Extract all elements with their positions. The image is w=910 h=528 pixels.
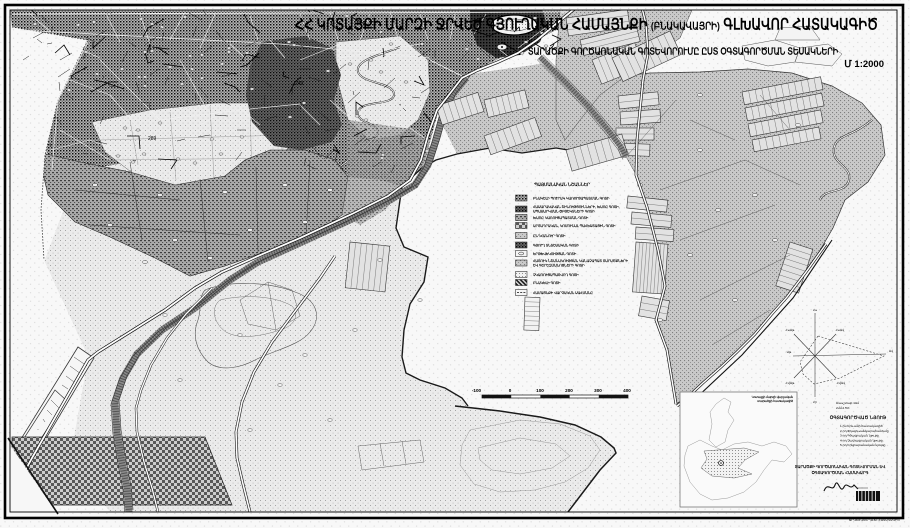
svg-text:0: 0 [509, 388, 512, 393]
svg-text:ՋՐՎԵԺ-2007 ԳԼԽ. ՀԱՏԱԿԱԳԻԾ: ՋՐՎԵԺ-2007 ԳԼԽ. ՀԱՏԱԿԱԳԻԾ [849, 518, 900, 522]
svg-text:ՍՊԱՍԱՐԿՄԱՆ ՕԲՅԵԿՏՆԵՐԻ ԳՈՏԻ: ՍՊԱՍԱՐԿՄԱՆ ՕԲՅԵԿՏՆԵՐԻ ԳՈՏԻ [533, 209, 595, 213]
svg-text:ԲՆԱԿԵԼԻ ԳՈՏԻ: ԲՆԱԿԵԼԻ ԳՈՏԻ [533, 281, 561, 285]
svg-text:289: 289 [148, 136, 157, 142]
svg-text:1-ին Երևանի հատակագիծ: 1-ին Երևանի հատակագիծ [840, 424, 883, 428]
svg-text:ՕԳՏԱԳՈՐԾՄԱՆ ՀԱՄԱԿԱՐԳ: ՕԳՏԱԳՈՐԾՄԱՆ ՀԱՄԱԿԱՐԳ [812, 470, 870, 475]
svg-text:ԽԱՌԸ ԿԱՌՈՒՑԱՊԱՏՄԱՆ ԳՈՏԻ: ԽԱՌԸ ԿԱՌՈՒՑԱՊԱՏՄԱՆ ԳՈՏԻ [533, 216, 589, 220]
svg-text:ՀվԱթ: ՀվԱթ [785, 381, 795, 385]
svg-text:300: 300 [594, 388, 602, 393]
svg-text:տարածքի հատակագիծ: տարածքի հատակագիծ [757, 398, 793, 403]
svg-text:Մասշտաբ 1Սմ: Մասշտաբ 1Սմ [836, 401, 859, 405]
svg-text:100: 100 [536, 388, 544, 393]
svg-text:2մմ-2.5%: 2մմ-2.5% [836, 406, 850, 410]
svg-text:200: 200 [565, 388, 573, 393]
svg-text:249: 249 [295, 81, 304, 87]
svg-text:ՀսԱթ: ՀսԱթ [785, 328, 795, 332]
svg-text:ՀվԱվ: ՀվԱվ [837, 381, 846, 385]
svg-text:ՀսԱվ: ՀսԱվ [836, 328, 845, 332]
svg-text:3-րդ Գծագրական նյութը: 3-րդ Գծագրական նյութը [840, 434, 879, 438]
svg-text:Մ 1:2000: Մ 1:2000 [844, 59, 884, 70]
svg-text:Հր: Հր [813, 400, 817, 404]
svg-text:ԵՎ ԳԵՐԵԶՄԱՆՈՑՆԵՐԻ ԳՈՏԻ: ԵՎ ԳԵՐԵԶՄԱՆՈՑՆԵՐԻ ԳՈՏԻ [533, 263, 585, 267]
svg-text:ՀՀ ԿՈՏԱՅՔԻ ՄԱՐԶԻ ՋՐՎԵԺ ԳՅՈՒՂԱԿ: ՀՀ ԿՈՏԱՅՔԻ ՄԱՐԶԻ ՋՐՎԵԺ ԳՅՈՒՂԱԿԱՆ ՀԱՄԱՅՆՔ… [295, 17, 878, 34]
svg-text:ՏԱՐԱԾՔԻ ԳՈՐԾԱՌՆԱԿԱՆ ԳՈՏԵՎՈՐՈՒՄ: ՏԱՐԱԾՔԻ ԳՈՐԾԱՌՆԱԿԱՆ ԳՈՏԵՎՈՐՈՒՄԸ ԸՍՏ ՕԳՏԱ… [528, 47, 838, 57]
svg-text:Ավ: Ավ [889, 349, 893, 353]
svg-text:ԵՐԹԵՎԵԿՈՒԹՅԱՆ ԳՈՏԻ: ԵՐԹԵՎԵԿՈՒԹՅԱՆ ԳՈՏԻ [533, 252, 577, 256]
svg-text:ՊԱՅՄԱՆԱԿԱՆ ՆՇԱՆՆԵՐ: ՊԱՅՄԱՆԱԿԱՆ ՆՇԱՆՆԵՐ [534, 182, 590, 187]
svg-text:Հս: Հս [813, 308, 817, 312]
svg-text:5-րդ Երկրաբանական նյութը: 5-րդ Երկրաբանական նյութը [840, 443, 886, 447]
svg-text:Աթ: Աթ [787, 350, 792, 354]
svg-text:ՕԳՏԱԳՈՐԾՎԱԾ ՆՅՈՒԹ: ՕԳՏԱԳՈՐԾՎԱԾ ՆՅՈՒԹ [830, 414, 888, 420]
svg-text:ԳՅՈՒՂ ՏՆՏԵՍԱԿԱՆ ԳՈՏԻ: ԳՅՈՒՂ ՏՆՏԵՍԱԿԱՆ ԳՈՏԻ [533, 243, 580, 247]
svg-text:ԱՐՏԱԴՐԱԿԱՆ, ԿՈՄՈՒՆԱԼ ՊԱՀԵՍՏԱՅԻ: ԱՐՏԱԴՐԱԿԱՆ, ԿՈՄՈՒՆԱԼ ՊԱՀԵՍՏԱՅԻՆ ԳՈՏԻ [533, 224, 616, 228]
svg-text:ՀԱՄԱՅՆՔԻ ՎԱՐՉԱԿԱՆ ՍԱՀՄԱՆԸ: ՀԱՄԱՅՆՔԻ ՎԱՐՉԱԿԱՆ ՍԱՀՄԱՆԸ [533, 291, 593, 295]
svg-text:ՉԿԱՌՈՒՑԱՊԱՏՎՈՂ ԳՈՏԻ: ՉԿԱՌՈՒՑԱՊԱՏՎՈՂ ԳՈՏԻ [533, 273, 579, 277]
svg-text:4-րդ Չափագրական նյութը: 4-րդ Չափագրական նյութը [840, 438, 883, 442]
svg-text:ԸՆԴՀԱՆՈՒՐ ԳՈՏԻ: ԸՆԴՀԱՆՈՒՐ ԳՈՏԻ [533, 234, 566, 238]
svg-text:400: 400 [623, 388, 631, 393]
svg-text:-100: -100 [472, 388, 482, 393]
svg-text:ԲՆԱԿԵԼԻ ՊՈՒՐԱԿ ԿԱՌՈՒՑԱՊԱՏՄԱՆ Գ: ԲՆԱԿԵԼԻ ՊՈՒՐԱԿ ԿԱՌՈՒՑԱՊԱՏՄԱՆ ԳՈՏԻ [533, 196, 610, 200]
svg-text:ՏԱՐԱԾՔԻ ԳՈՐԾԱՌՆԱԿԱՆ ԳՈՏԵՎՈՐՄԱՆ: ՏԱՐԱԾՔԻ ԳՈՐԾԱՌՆԱԿԱՆ ԳՈՏԵՎՈՐՄԱՆ ԵՎ [795, 464, 887, 469]
svg-text:2-րդ Օդալուսանկարահանումը: 2-րդ Օդալուսանկարահանումը [840, 429, 889, 433]
